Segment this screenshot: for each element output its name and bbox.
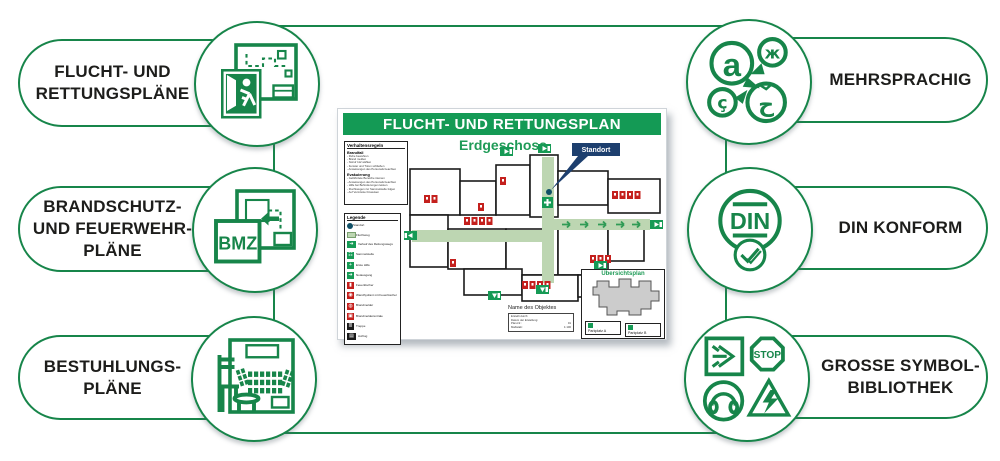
legend-item: +Erste Hilfe	[347, 262, 398, 269]
assembly-spot-a-label: Parkplatz A	[586, 329, 620, 334]
legend-item: ◉Wandhydrant mit Feuerlöscher	[347, 292, 398, 299]
escape-plan-infographic: FLUCHT- UNDRETTUNGSPLÄNE BRANDSCHUTZ-UND…	[0, 0, 1000, 461]
assembly-point-icon	[628, 325, 633, 330]
svg-text:BMZ: BMZ	[218, 234, 257, 254]
legend-item: ▤Aufzug	[347, 333, 398, 340]
svg-text:a: a	[723, 46, 742, 83]
rules-title: Verhaltensregeln	[347, 143, 405, 149]
svg-text:ح: ح	[758, 93, 774, 118]
rules-item: - Anweisungen des Personals beachten	[347, 168, 405, 171]
svg-text:ç: ç	[717, 94, 727, 114]
legend-item: ☷Sammelstelle	[347, 252, 398, 259]
title-block-table: Erstellt durch:Datum der Erstellung:Plan…	[508, 313, 574, 332]
din-conform-icon: DIN	[687, 167, 813, 293]
legend-title: Legende	[347, 215, 398, 221]
connector-top	[262, 25, 740, 27]
title-block: Name des Objektes Erstellt durch:Datum d…	[508, 305, 574, 332]
overview-plan-box: Übersichtsplan Parkplatz A Parkplatz B	[581, 269, 665, 339]
escape-plan-document: FLUCHT- UND RETTUNGSPLAN Erdgeschoss Ver…	[337, 108, 667, 340]
assembly-spot-b: Parkplatz B	[625, 323, 661, 337]
legend-item: ◍Brandmelder	[347, 303, 398, 310]
legend-item: ▣Brandmeldezentrale	[347, 313, 398, 320]
svg-text:ж: ж	[765, 45, 781, 63]
legend-item: ➔Notausgang	[347, 272, 398, 279]
rules-of-conduct-box: VerhaltensregelnBrandfall- Ruhe bewahren…	[344, 141, 408, 205]
multilingual-icon: a ж ç ح	[686, 19, 812, 145]
legend-item: Fluchtweg	[347, 232, 398, 238]
assembly-point-icon	[588, 323, 593, 328]
legend-box: LegendeStandortFluchtweg➜Verlauf des Ret…	[344, 213, 401, 345]
legend-item: Standort	[347, 223, 398, 229]
svg-text:STOP: STOP	[754, 350, 782, 361]
legend-item: ▮Feuerlöscher	[347, 282, 398, 289]
connector-bottom	[262, 432, 740, 434]
plan-title: FLUCHT- UND RETTUNGSPLAN	[343, 113, 661, 135]
svg-text:DIN: DIN	[730, 208, 770, 234]
assembly-spot-a: Parkplatz A	[585, 321, 621, 335]
title-block-row: Maßstab:1:100	[511, 326, 571, 330]
legend-item: ≣Treppe	[347, 323, 398, 330]
fire-protection-plan-icon: BMZ	[192, 167, 318, 293]
rules-item: - Auf Vermisste hinweisen	[347, 191, 405, 194]
legend-item: ➜Verlauf des Rettungswegs	[347, 241, 398, 248]
building-footprint	[583, 277, 663, 317]
symbol-library-icon: STOP	[684, 316, 810, 442]
escape-plan-icon	[194, 21, 320, 147]
standort-label: Standort	[582, 147, 611, 154]
assembly-spot-b-label: Parkplatz B	[626, 331, 660, 336]
seating-plan-icon	[191, 316, 317, 442]
object-name: Name des Objektes	[508, 305, 574, 311]
